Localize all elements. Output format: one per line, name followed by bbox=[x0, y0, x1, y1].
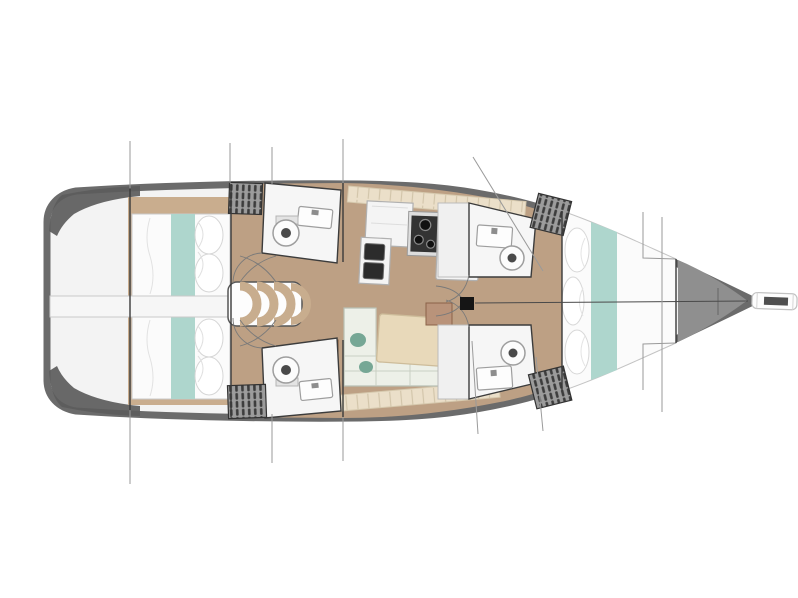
galley-sink-unit bbox=[359, 237, 391, 285]
hatched-locker bbox=[227, 384, 266, 418]
yacht-floorplan-canvas bbox=[0, 0, 798, 598]
burner bbox=[414, 235, 423, 244]
sofa-teal-cushion bbox=[350, 333, 366, 347]
sink bbox=[299, 378, 333, 400]
aft-head-port bbox=[262, 183, 341, 263]
mast-foot bbox=[460, 297, 474, 310]
pillow bbox=[195, 216, 223, 254]
bed-runner bbox=[171, 214, 195, 297]
sink bbox=[476, 366, 512, 390]
burner bbox=[420, 219, 431, 230]
aft-head-starboard bbox=[262, 338, 341, 418]
toilet-bowl bbox=[508, 254, 517, 263]
bed-runner bbox=[171, 316, 195, 399]
faucet bbox=[311, 210, 318, 216]
companionway-steps bbox=[228, 282, 307, 326]
toilet-bowl bbox=[509, 349, 518, 358]
faucet bbox=[491, 228, 497, 234]
pillow bbox=[195, 319, 223, 357]
shower-stall bbox=[438, 203, 469, 277]
vberth-runner bbox=[591, 222, 617, 380]
hatched-locker bbox=[228, 182, 262, 214]
bowsprit bbox=[752, 292, 798, 310]
stern-walkway bbox=[50, 296, 232, 317]
pillow bbox=[195, 254, 223, 292]
aft-cabin-starboard-bed bbox=[132, 316, 230, 399]
aft-cabin-port-bed bbox=[132, 214, 230, 297]
bowsprit-fitting bbox=[764, 297, 788, 306]
sink bbox=[297, 206, 333, 228]
faucet bbox=[490, 370, 496, 376]
floorplan-svg bbox=[0, 0, 798, 598]
pillow bbox=[562, 277, 584, 325]
toilet-bowl bbox=[281, 228, 291, 238]
pillow bbox=[195, 357, 223, 395]
faucet bbox=[311, 383, 318, 389]
storage-box bbox=[426, 303, 452, 325]
sofa-teal-cushion bbox=[359, 361, 373, 373]
shower-stall bbox=[438, 325, 469, 399]
burner bbox=[426, 240, 434, 248]
toilet-bowl bbox=[281, 365, 291, 375]
sink-basin bbox=[363, 262, 384, 279]
pillow bbox=[565, 330, 589, 374]
sink-basin bbox=[364, 243, 385, 260]
pillow bbox=[565, 228, 589, 272]
